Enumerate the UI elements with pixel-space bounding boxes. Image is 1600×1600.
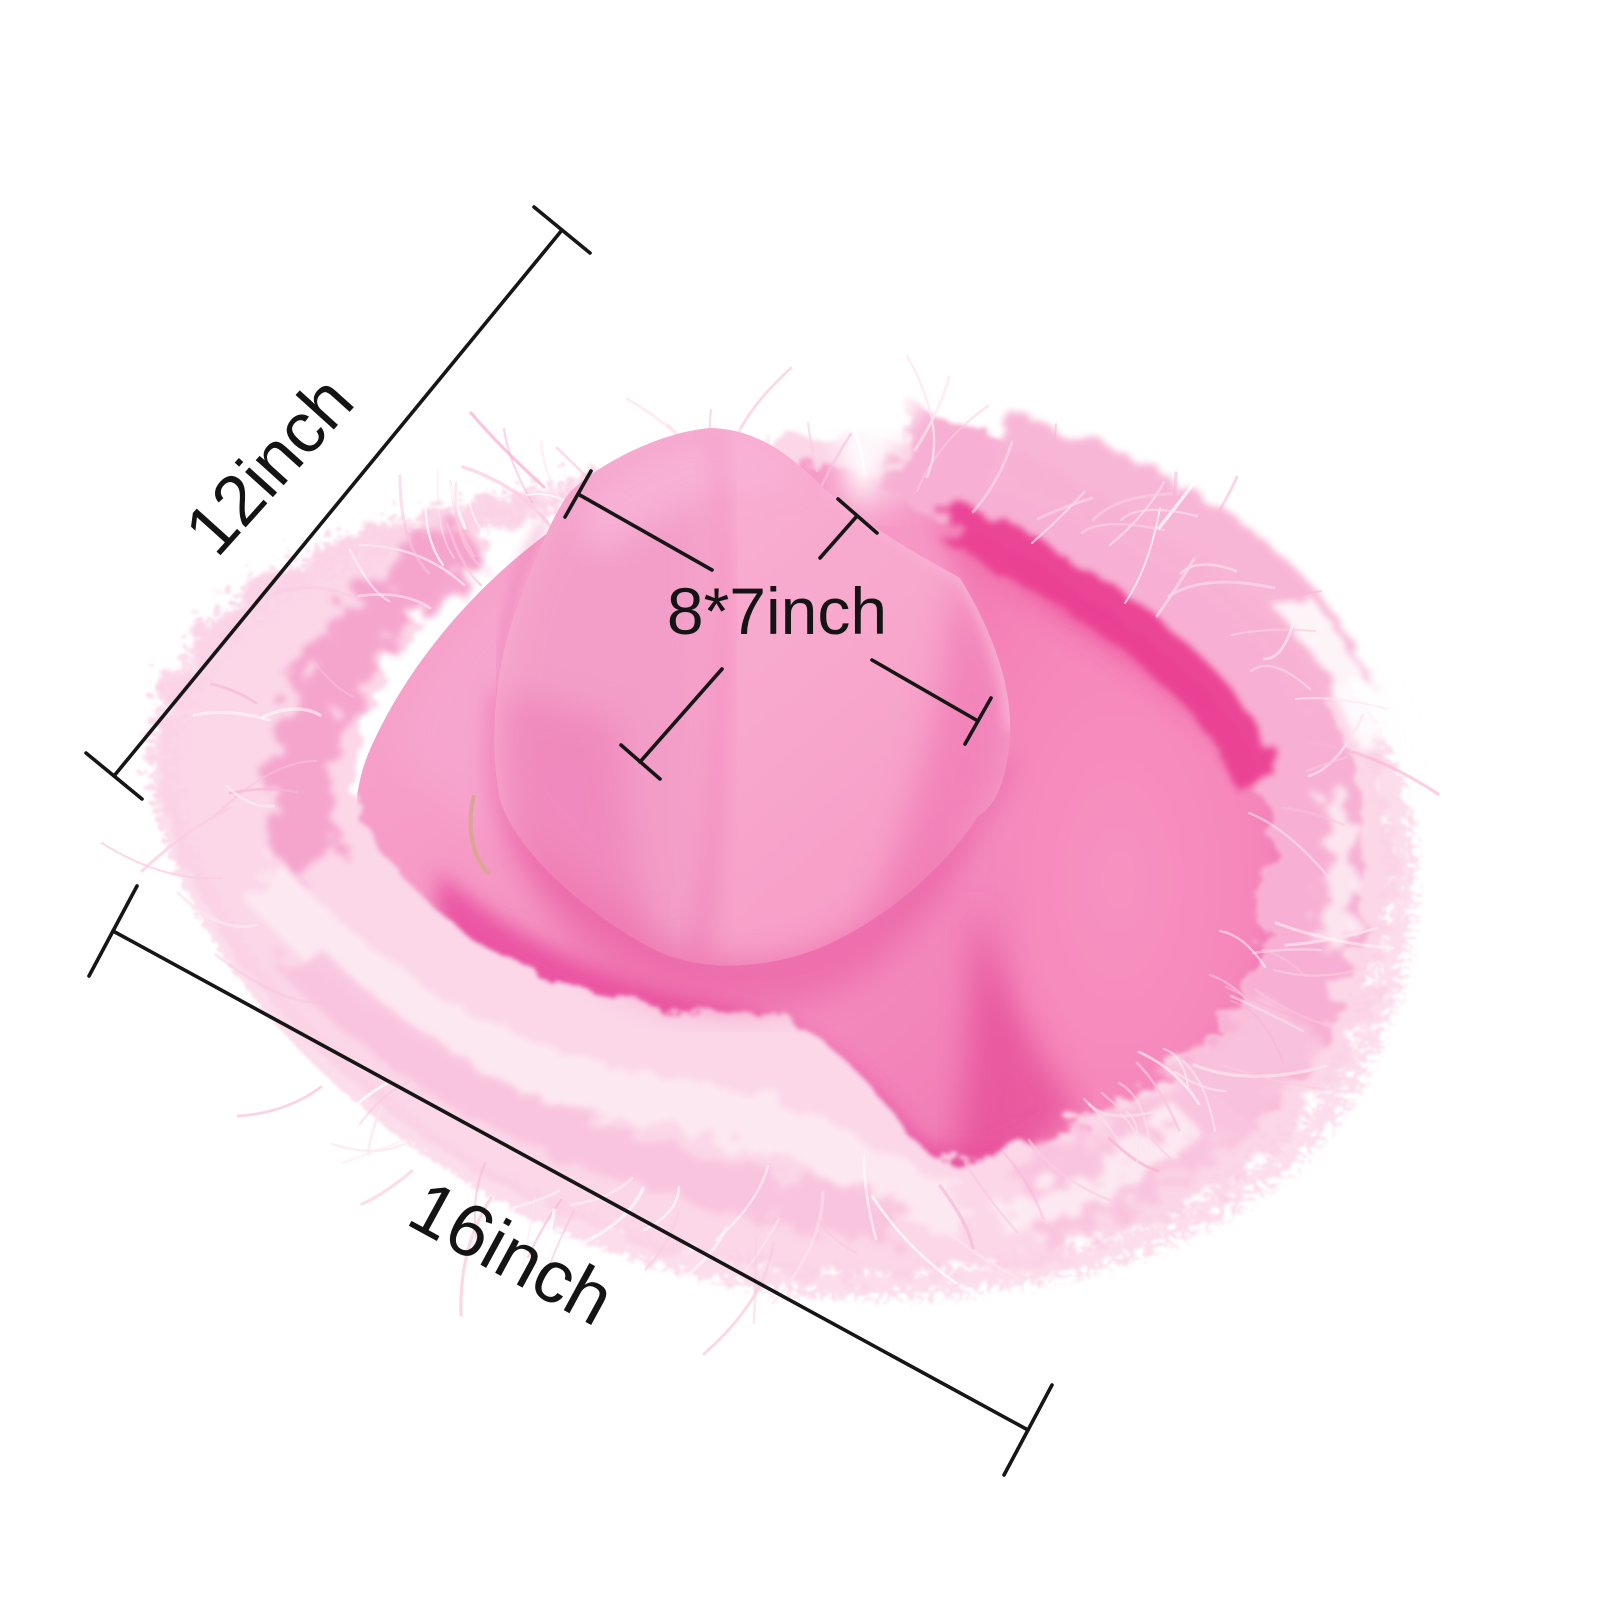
svg-text:8*7inch: 8*7inch	[667, 574, 887, 648]
